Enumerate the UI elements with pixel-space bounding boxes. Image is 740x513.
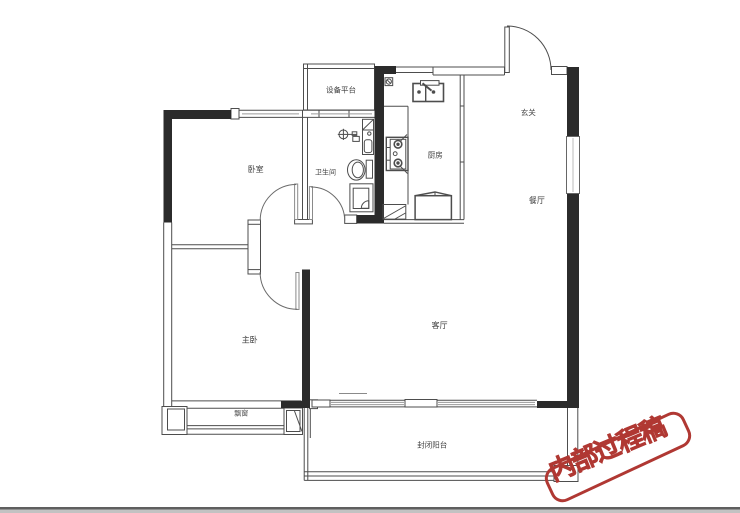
svg-text:飘窗: 飘窗 bbox=[234, 409, 248, 418]
svg-text:餐厅: 餐厅 bbox=[529, 196, 545, 205]
svg-text:卫生间: 卫生间 bbox=[315, 167, 336, 176]
svg-text:玄关: 玄关 bbox=[521, 107, 537, 117]
svg-text:厨房: 厨房 bbox=[428, 149, 443, 159]
svg-text:设备平台: 设备平台 bbox=[326, 85, 356, 95]
svg-text:主卧: 主卧 bbox=[242, 334, 258, 344]
svg-text:客厅: 客厅 bbox=[432, 320, 448, 330]
svg-text:封闭阳台: 封闭阳台 bbox=[417, 439, 447, 449]
svg-text:卧室: 卧室 bbox=[248, 164, 264, 174]
